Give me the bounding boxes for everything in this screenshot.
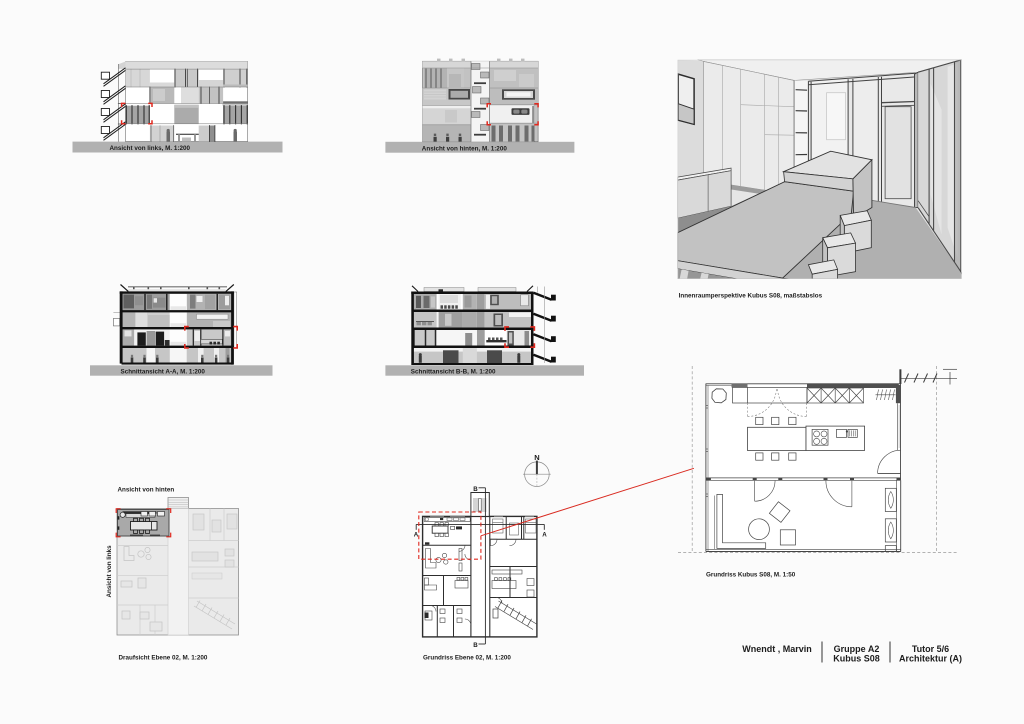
- svg-text:Draufsicht Ebene 02, M. 1:200: Draufsicht Ebene 02, M. 1:200: [119, 655, 208, 662]
- svg-text:Ansicht von hinten, M. 1:200: Ansicht von hinten, M. 1:200: [422, 145, 508, 152]
- svg-text:Wnendt , Marvin: Wnendt , Marvin: [742, 644, 812, 654]
- svg-text:B: B: [473, 486, 478, 493]
- svg-text:Grundriss Ebene 02, M. 1:200: Grundriss Ebene 02, M. 1:200: [423, 655, 511, 662]
- svg-text:Ansicht von links: Ansicht von links: [106, 545, 113, 598]
- svg-text:Ansicht von links, M. 1:200: Ansicht von links, M. 1:200: [110, 145, 191, 152]
- svg-text:Architektur (A): Architektur (A): [899, 653, 962, 663]
- svg-text:Tutor 5/6: Tutor 5/6: [912, 644, 949, 654]
- svg-text:Grundriss Kubus S08, M. 1:50: Grundriss Kubus S08, M. 1:50: [706, 572, 796, 579]
- svg-text:B: B: [473, 642, 478, 649]
- svg-text:Schnittansicht A-A, M. 1:200: Schnittansicht A-A, M. 1:200: [121, 369, 206, 376]
- svg-text:N: N: [534, 453, 539, 462]
- svg-text:A: A: [542, 531, 547, 538]
- svg-text:Schnittansicht B-B, M. 1:200: Schnittansicht B-B, M. 1:200: [411, 369, 496, 376]
- svg-text:Gruppe A2: Gruppe A2: [834, 644, 880, 654]
- svg-text:Innenraumperspektive Kubus S08: Innenraumperspektive Kubus S08, maßstabs…: [679, 292, 823, 299]
- svg-text:A: A: [414, 531, 419, 538]
- svg-text:Ansicht von hinten: Ansicht von hinten: [118, 487, 175, 494]
- svg-text:Kubus S08: Kubus S08: [833, 653, 880, 663]
